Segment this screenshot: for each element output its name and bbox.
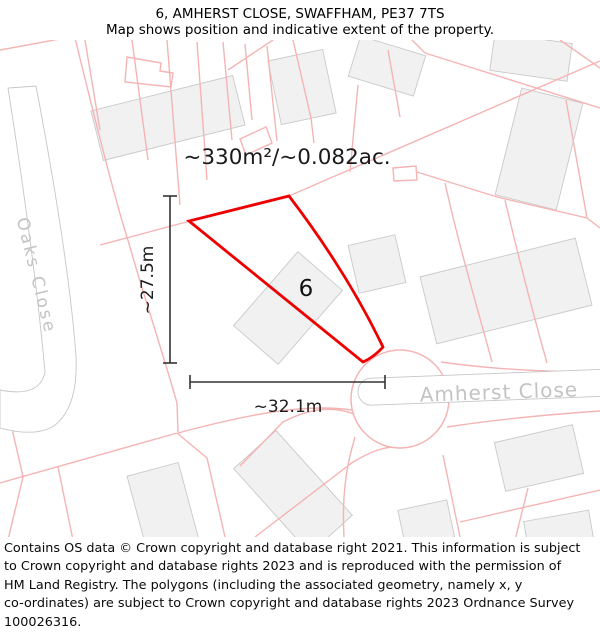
building (420, 238, 592, 344)
copyright-text: Contains OS data © Crown copyright and d… (0, 537, 600, 632)
building (495, 88, 583, 210)
buildings-layer (91, 33, 596, 566)
building (348, 235, 406, 294)
map-layers: Oaks Close Amherst Close 6 ~330m²/~0.082… (0, 33, 600, 566)
page-footer: Contains OS data © Crown copyright and d… (0, 537, 600, 625)
property-map: Oaks Close Amherst Close 6 ~330m²/~0.082… (0, 0, 600, 625)
parcel-lines-top (0, 36, 400, 245)
page-header: 6, AMHERST CLOSE, SWAFFHAM, PE37 7TS Map… (0, 0, 600, 40)
area-label: ~330m²/~0.082ac. (183, 145, 390, 170)
height-dimension-label: ~27.5m (138, 246, 158, 315)
building (348, 36, 425, 96)
building (268, 49, 336, 124)
plot-number-label: 6 (299, 276, 314, 302)
map-container: Oaks Close Amherst Close 6 ~330m²/~0.082… (0, 0, 600, 625)
street-label-amherst-close: Amherst Close (419, 377, 578, 407)
page-subtitle: Map shows position and indicative extent… (0, 22, 600, 39)
width-dimension-label: ~32.1m (254, 397, 323, 417)
building (490, 33, 573, 81)
page-title: 6, AMHERST CLOSE, SWAFFHAM, PE37 7TS (0, 0, 600, 22)
building (234, 431, 353, 554)
property-map-page: { "header": { "title": "6, AMHERST CLOSE… (0, 0, 600, 625)
building (494, 425, 583, 492)
